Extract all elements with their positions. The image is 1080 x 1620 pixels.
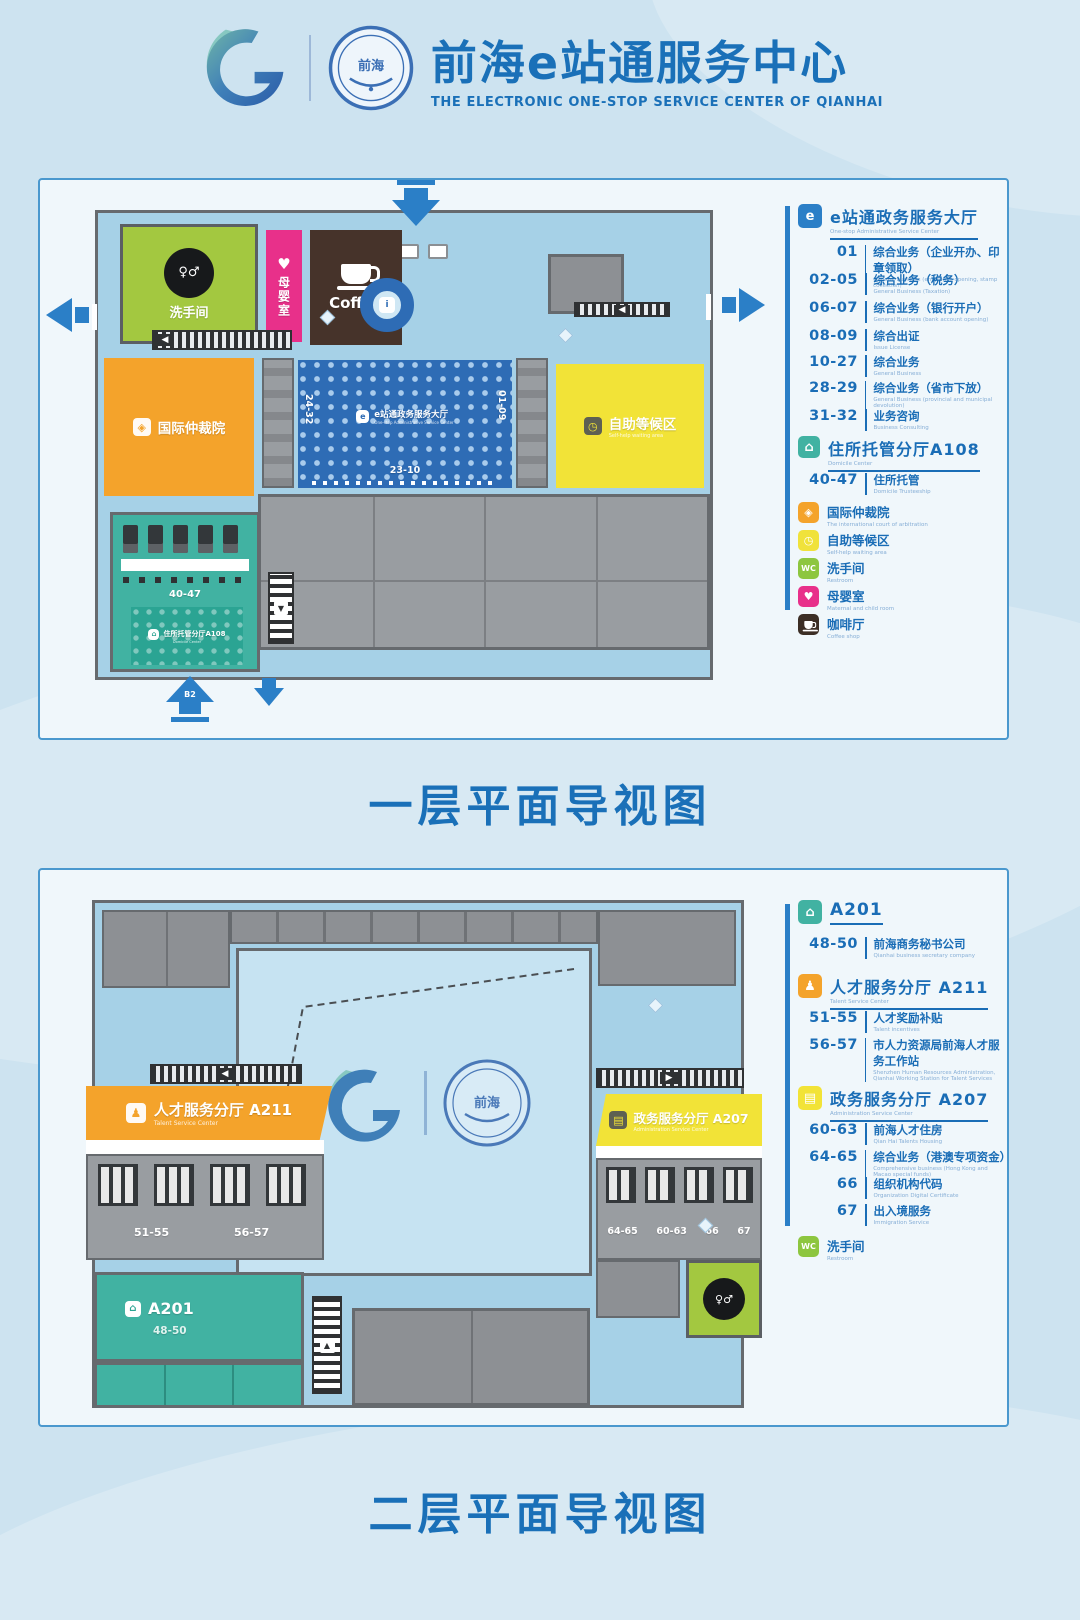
floor2-teal-rooms [94,1362,304,1408]
admin-icon: ▤ [609,1111,627,1129]
legend-row: 56-57市人力资源局前海人才服务工作站Shenzhen Human Resou… [798,1037,1007,1082]
restroom-figures-icon: ♀♂ [703,1278,745,1320]
door-mark [92,304,97,330]
floor2-caption: 二层平面导视图 [0,1478,1080,1542]
floor2-talent-desks: 51-55 56-57 [86,1154,324,1260]
gate-icon [399,244,419,259]
counter-icon [223,525,238,553]
legend-bar [785,904,790,1226]
room-divider [596,497,598,647]
gate-icon [428,244,448,259]
legend-row: 48-50前海商务秘书公司Qianhai business secretary … [798,936,975,959]
legend-admin-title: 政务服务分厅 A207 [830,1086,988,1110]
desk-cluster [645,1167,675,1203]
admin-windows-4: 67 [737,1226,750,1237]
floor2-panel: 前海 ◀ ♟ 人才服务分厅 A211 Talent Service Center… [38,868,1009,1427]
g-logo [197,20,293,116]
exit-right-arrow-icon [722,288,765,322]
service-counters-right [516,358,548,488]
coffee-icon [798,614,819,635]
floor2-admin-banner: ▤ 政务服务分厅 A207 Administration Service Cen… [596,1094,762,1146]
hall-title-eng: One-stop Administrative Service Center [374,420,453,425]
talent-banner-label: 人才服务分厅 A211 [154,1099,292,1120]
admin-windows-2: 60-63 [656,1226,686,1237]
floor2-restroom-room: ♀♂ [686,1260,762,1338]
floor1-service-hall: 24-32 01-09 23-10 e e站通政务服务大厅 One-stop A… [298,360,512,488]
heart-icon: ♥ [277,255,290,273]
floor1-backoffice-block [258,494,710,650]
escalator-arrow-icon: ▶ [660,1072,678,1084]
legend-hall-header: e e站通政务服务大厅One-stop Administrative Servi… [798,204,978,240]
floor2-backoffice-room [596,1260,680,1318]
window-ticks [312,481,498,485]
down-arrow-icon: ▼ [274,601,288,615]
stairs-down: ▼ [268,572,294,644]
escalator-arrow-icon: ◀ [614,305,630,315]
floor2-top-rooms [230,910,598,944]
page-subtitle: THE ELECTRONIC ONE-STOP SERVICE CENTER O… [431,95,883,110]
svg-text:前海: 前海 [358,57,384,74]
escalator-arrow-icon: ◀ [156,334,174,346]
talent-icon: ♟ [798,974,822,998]
admin-banner-label: 政务服务分厅 A207 [633,1108,748,1127]
door-mark [706,294,711,320]
legend-row: 31-32业务咨询Business Consulting [798,408,929,431]
down-arrow-icon [254,678,284,706]
floor2-backoffice-room [102,910,230,988]
desk-cluster [606,1167,636,1203]
legend-row: 64-65综合业务（港澳专项资金）Comprehensive business … [798,1149,1007,1178]
arbitration-icon: ◈ [798,502,819,523]
hall-icon: e [356,410,369,423]
desk-cluster [266,1164,306,1206]
header: 前海 前海e站通服务中心 THE ELECTRONIC ONE-STOP SER… [0,20,1080,116]
legend-facility: WC 洗手间Restroom [798,558,865,584]
escalator-to-floor2: ◀ [152,330,292,350]
legend-row: 08-09综合出证Issue License [798,328,920,351]
talent-windows-1: 51-55 [134,1226,169,1239]
room-divider [261,580,707,582]
domicile-icon: ⌂ [798,436,820,458]
floor2-backoffice-block [352,1308,590,1406]
admin-windows-row: 64-65 60-63 66 67 [598,1226,760,1237]
info-desk-icon: i [379,297,395,313]
legend-row: 28-29综合业务（省市下放）General Business (provinc… [798,380,1007,409]
room-divider [471,1311,473,1403]
coffee-cup-icon [341,264,371,284]
admin-banner-eng: Administration Service Center [633,1127,748,1133]
nursery-room-label: 母婴室 [276,276,293,318]
domicile-windows: 40-47 [113,589,257,600]
counter-strip [86,1140,324,1154]
b2-up-arrow-icon: B2 [166,676,214,722]
desk-cluster [723,1167,753,1203]
title-block: 前海e站通服务中心 THE ELECTRONIC ONE-STOP SERVIC… [431,27,883,110]
desk-cluster [98,1164,138,1206]
restroom-figures-icon: ♀♂ [164,248,214,298]
restroom-icon: WC [798,558,819,579]
a201-label: ⌂ A201 [125,1299,194,1318]
legend-hall-eng: One-stop Administrative Service Center [830,229,978,235]
hall-title: e站通政务服务大厅 [374,408,453,420]
waiting-area-eng: Self-help waiting area [609,433,677,439]
desk-cluster [210,1164,250,1206]
desk-cluster [684,1167,714,1203]
talent-icon: ♟ [126,1103,146,1123]
legend-facility: 咖啡厅Coffee shop [798,614,865,640]
floor2-a201-room: ⌂ A201 48-50 [94,1272,304,1362]
waiting-area-label: 自助等候区 [609,413,677,433]
talent-windows-2: 56-57 [234,1226,269,1239]
floor2-admin-desks: 64-65 60-63 66 67 [596,1158,762,1260]
counter-strip [596,1146,762,1158]
legend-a201-title: A201 [830,900,883,920]
exit-left-arrow-icon [46,298,89,332]
counter-icon [123,525,138,553]
escalator: ◀ [150,1064,302,1084]
service-counters-left [262,358,294,488]
floor1-caption: 一层平面导视图 [0,770,1080,834]
admin-icon: ▤ [798,1086,822,1110]
domicile-hall-eng: Domicile Center [173,640,201,644]
legend-bar [785,206,790,610]
floor1-restroom-room: ♀♂ 洗手间 [120,224,258,344]
legend-row: 60-63前海人才住房Qian Hai Talents Housing [798,1122,943,1145]
legend-talent-title: 人才服务分厅 A211 [830,974,988,998]
stairs-up: ▲ [312,1296,342,1394]
admin-windows-1: 64-65 [607,1226,637,1237]
legend-hall-title: e站通政务服务大厅 [830,204,978,228]
legend-row: 10-27综合业务General Business [798,354,921,377]
domicile-seating: ⌂ 住所托管分厅A108 Domicile Center [131,607,243,665]
legend-facility: ◷ 自助等候区Self-help waiting area [798,530,890,556]
legend-talent-header: ♟ 人才服务分厅 A211Talent Service Center [798,974,988,1010]
a201-icon: ⌂ [125,1301,141,1317]
counter-row [123,525,238,553]
floor2-backoffice-room [598,910,736,986]
a201-windows: 48-50 [153,1325,187,1337]
entrance-arrow-icon [392,180,440,226]
logo-divider [309,35,311,101]
room-divider [164,1365,166,1405]
legend-admin-eng: Administration Service Center [830,1111,988,1117]
up-arrow-icon: ▲ [320,1338,335,1353]
legend-row: 66组织机构代码Organization Digital Certificate [798,1176,959,1199]
legend-facility: ◈ 国际仲裁院The international court of arbitr… [798,502,928,528]
escalator: ▶ [596,1068,744,1088]
room-divider [232,1365,234,1405]
arbitration-icon: ◈ [133,418,151,436]
desk-cluster [154,1164,194,1206]
restroom-icon: WC [798,1236,819,1257]
legend-row: 06-07综合业务（银行开户）General Business (bank ac… [798,300,989,323]
signboard-page: 前海 前海e站通服务中心 THE ELECTRONIC ONE-STOP SER… [0,0,1080,1620]
domicile-icon: ⌂ [148,629,159,640]
info-desk: i [360,278,414,332]
floor1-nursery-room: ♥ 母婴室 [266,230,302,342]
legend-row: 67出入境服务Immigration Service [798,1203,931,1226]
domicile-hall-label: 住所托管分厅A108 [163,629,225,639]
legend-a201-header: ⌂ A201 [798,900,883,925]
escalator: ◀ [574,302,670,317]
chair-row [123,577,247,583]
counter-icon [198,525,213,553]
a201-icon: ⌂ [798,900,822,924]
legend-domicile-title: 住所托管分厅A108 [828,436,980,460]
seal-logo: 前海 [327,24,415,112]
legend-domicile-header: ⌂ 住所托管分厅A108Domicile Center [798,436,980,472]
legend-facility: WC 洗手间Restroom [798,1236,865,1262]
waiting-icon: ◷ [584,417,602,435]
arbitration-room-label: 国际仲裁院 [158,417,226,437]
floor1-domicile-hall: 40-47 ⌂ 住所托管分厅A108 Domicile Center [110,512,260,672]
counter-icon [148,525,163,553]
restroom-room-label: 洗手间 [169,302,208,321]
room-divider [484,497,486,647]
legend-domicile-eng: Domicile Center [828,461,980,467]
room-divider [166,912,168,986]
floor2-talent-banner: ♟ 人才服务分厅 A211 Talent Service Center [86,1086,332,1140]
legend-row: 40-47住所托管Domicile Trusteeship [798,472,931,495]
waiting-icon: ◷ [798,530,819,551]
talent-banner-eng: Talent Service Center [154,1120,292,1127]
floor1-arbitration-room: ◈ 国际仲裁院 [104,358,254,496]
counter-strip [121,559,249,571]
hall-windows-bottom: 23-10 [298,465,512,476]
svg-text:前海: 前海 [474,1095,500,1111]
legend-talent-eng: Talent Service Center [830,999,988,1005]
legend-row: 02-05综合业务（税务）General Business (Taxation) [798,272,966,295]
hall-label: e e站通政务服务大厅 One-stop Administrative Serv… [298,408,512,425]
page-title: 前海e站通服务中心 [431,27,883,93]
room-divider [373,497,375,647]
floor1-waiting-area: ◷ 自助等候区 Self-help waiting area [556,364,704,488]
b2-label: B2 [184,690,196,699]
legend-admin-header: ▤ 政务服务分厅 A207Administration Service Cent… [798,1086,988,1122]
nursery-icon: ♥ [798,586,819,607]
escalator-arrow-icon: ◀ [216,1068,234,1080]
legend-facility: ♥ 母婴室Maternal and child room [798,586,894,612]
hall-icon: e [798,204,822,228]
legend-row: 51-55人才奖励补贴Talent incentives [798,1010,943,1033]
counter-icon [173,525,188,553]
floor1-panel: ♀♂ 洗手间 ♥ 母婴室 Coffee i ◀ [38,178,1009,740]
a201-title: A201 [148,1299,194,1318]
